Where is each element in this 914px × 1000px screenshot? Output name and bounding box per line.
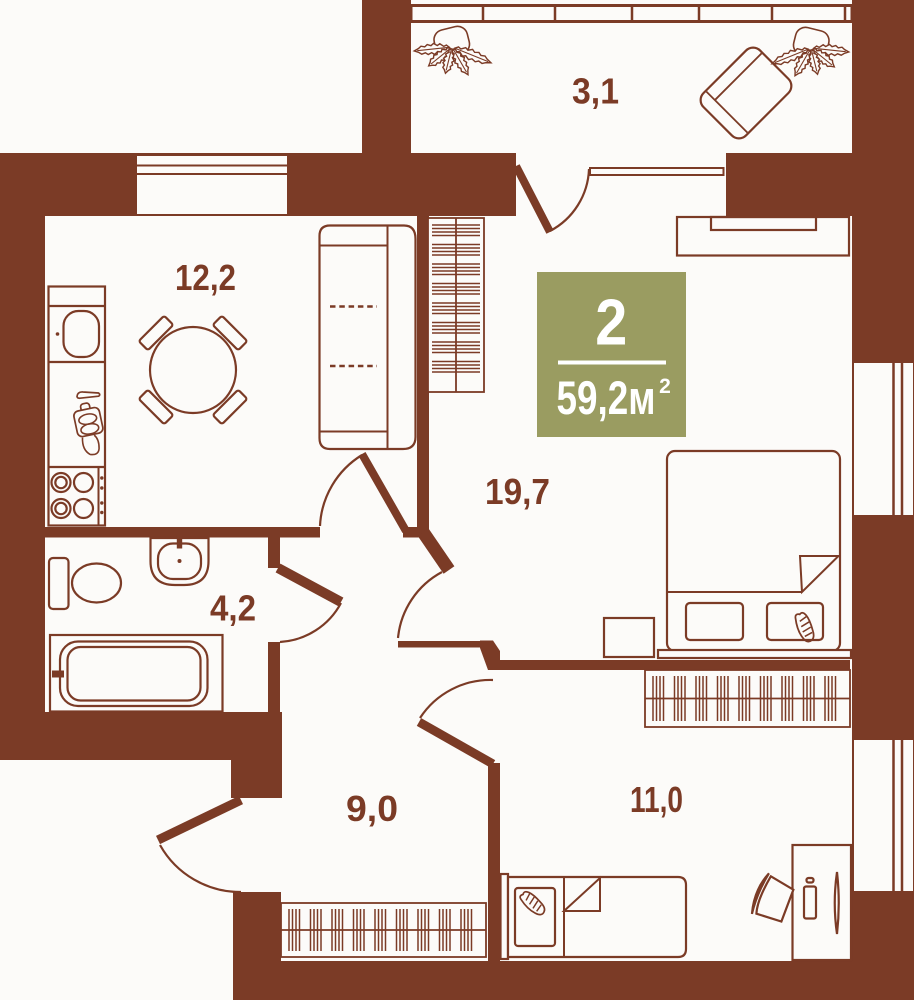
svg-text:2: 2 <box>595 286 627 359</box>
svg-text:4,2: 4,2 <box>210 588 256 629</box>
svg-text:59,2м: 59,2м <box>557 371 656 424</box>
svg-text:2: 2 <box>659 375 671 398</box>
svg-text:19,7: 19,7 <box>485 471 550 512</box>
svg-text:11,0: 11,0 <box>630 779 683 820</box>
svg-text:3,1: 3,1 <box>572 71 619 112</box>
svg-text:9,0: 9,0 <box>346 788 398 829</box>
svg-text:12,2: 12,2 <box>175 257 236 298</box>
